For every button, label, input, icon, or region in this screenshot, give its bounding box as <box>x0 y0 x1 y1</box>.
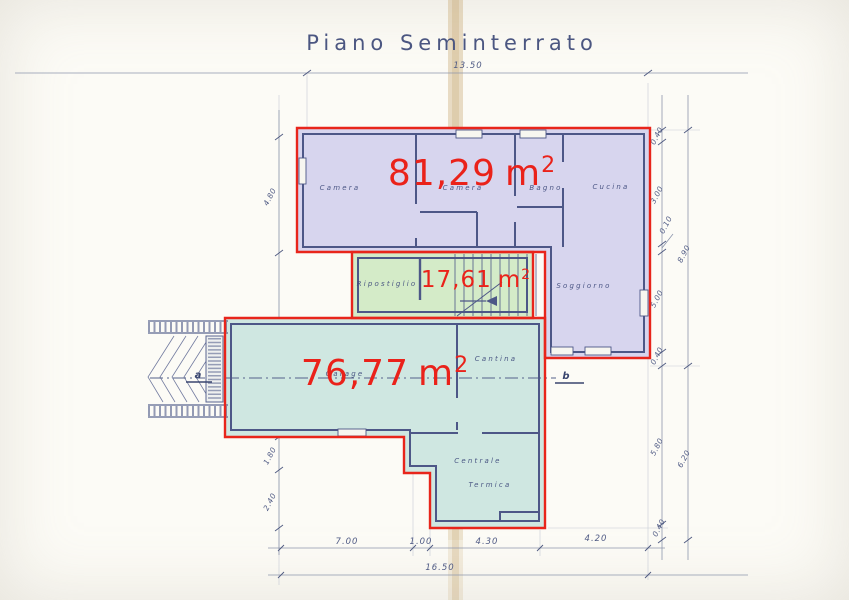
dim-bottom-total: 16.50 <box>425 563 454 573</box>
window-garage-bottom <box>338 429 366 436</box>
floor-plan-drawing: Piano Seminterrato 13.50 0.40 3.00 0.10 … <box>0 0 849 600</box>
area-teal-unit: m <box>418 353 454 394</box>
dim-right-inner-2: 0.10 <box>657 214 674 235</box>
dim-bottom-2: 4.30 <box>476 537 499 547</box>
room-label-centrale-termica-2: Termica <box>469 481 512 489</box>
room-label-soggiorno: Soggiorno <box>556 282 611 290</box>
dim-top-total: 13.50 <box>453 61 482 71</box>
dim-right-outer-0: 8.90 <box>675 243 692 264</box>
plan-title: Piano Seminterrato <box>306 31 598 55</box>
room-label-cucina: Cucina <box>592 183 629 191</box>
room-label-ripostiglio: Ripostiglio <box>357 280 418 288</box>
dim-bottom-1: 1.00 <box>410 537 433 547</box>
area-teal-number: 76,77 <box>301 353 409 394</box>
ramp-driveway <box>148 321 228 417</box>
dim-right-outer-1: 6.20 <box>675 448 692 469</box>
dim-left-lower-0: 1.80 <box>261 445 278 466</box>
area-green-sup: 2 <box>521 267 531 283</box>
area-value-purple: 81,29m2 <box>388 153 556 194</box>
section-marker-a: a <box>195 370 202 381</box>
area-purple-sup: 2 <box>541 153 556 178</box>
dim-left-upper: 4.80 <box>261 186 278 207</box>
room-label-cantina: Cantina <box>475 355 517 363</box>
window-soggiorno-bottom-1 <box>551 347 573 355</box>
room-label-camera-left: Camera <box>320 184 361 192</box>
dim-right-inner-5: 5.80 <box>648 436 665 457</box>
window-left <box>299 158 306 184</box>
area-purple-number: 81,29 <box>388 153 496 194</box>
area-green-number: 17,61 <box>421 267 492 293</box>
area-value-teal: 76,77m2 <box>301 353 469 394</box>
section-marker-b: b <box>562 371 569 382</box>
dim-left-lower-1: 2.40 <box>261 491 278 512</box>
window-top-2 <box>520 130 546 138</box>
dim-bottom-3: 4.20 <box>585 534 608 544</box>
area-green-unit: m <box>498 267 521 293</box>
window-soggiorno-right <box>640 290 648 316</box>
area-teal-sup: 2 <box>454 353 469 378</box>
window-soggiorno-bottom-2 <box>585 347 611 355</box>
room-label-centrale-termica-1: Centrale <box>454 457 501 465</box>
floor-plan-page: Piano Seminterrato 13.50 0.40 3.00 0.10 … <box>0 0 849 600</box>
area-value-green: 17,61m2 <box>421 267 531 293</box>
area-purple-unit: m <box>505 153 541 194</box>
window-top-1 <box>456 130 482 138</box>
dim-bottom-0: 7.00 <box>336 537 359 547</box>
